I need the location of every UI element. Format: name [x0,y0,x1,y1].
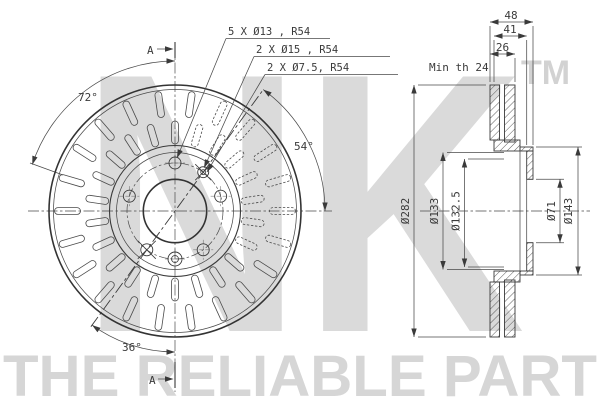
trademark-watermark: TM [521,54,570,92]
vent-gap-lower [500,283,504,338]
angle-label-54: 54° [294,140,314,153]
arrowhead [557,179,562,188]
section-marker-a-top: A [147,44,154,57]
section-marker-a-bottom: A [149,374,156,387]
dim-d71-label: Ø71 [545,201,558,221]
dim-d132-5-label: Ø132.5 [450,191,463,231]
dim-d133-label: Ø133 [428,198,441,225]
arrowhead [575,147,580,156]
arrowhead [575,267,580,276]
dim-41-label: 41 [503,23,516,36]
dim-48-label: 48 [504,9,517,22]
dim-d143-label: Ø143 [562,198,575,225]
angle-label-72: 72° [78,91,98,104]
callout-holes-7-5: 2 X Ø7.5, R54 [267,62,349,74]
arrowhead [525,19,534,24]
min-thickness-note: Min th 24 [429,61,489,74]
callout-bolt-holes: 5 X Ø13 , R54 [228,26,310,38]
brake-disc-technical-drawing: NK TM THE RELIABLE PART 72° 54° 36° A [0,0,600,400]
arrowhead [557,234,562,243]
angle-label-36: 36° [122,341,142,354]
tagline-watermark: THE RELIABLE PART [3,344,597,400]
vent-gap-upper [500,84,504,139]
dim-d282-label: Ø282 [399,198,412,225]
callout-holes-15: 2 X Ø15 , R54 [256,44,338,56]
